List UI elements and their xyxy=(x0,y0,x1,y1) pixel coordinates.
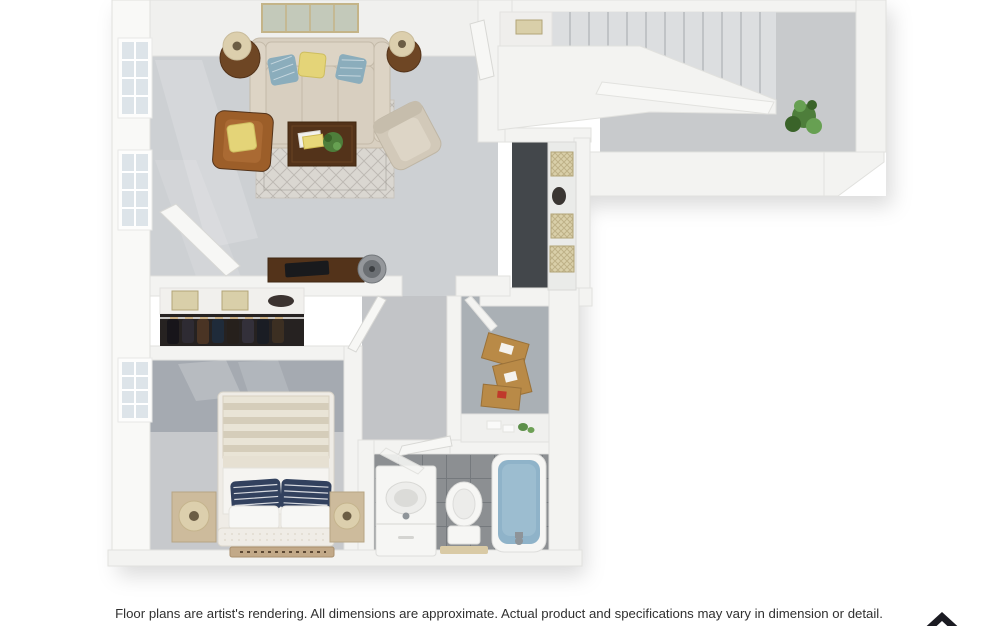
entry-bottom-wall xyxy=(578,152,824,196)
living-window-lower xyxy=(118,150,152,230)
bed xyxy=(218,392,334,546)
staircase xyxy=(498,12,776,130)
bedroom-top-wall xyxy=(150,346,362,360)
living-bottom-wall-right xyxy=(456,276,510,296)
magazines xyxy=(298,130,324,149)
desk xyxy=(268,255,386,283)
bed-footboard xyxy=(218,528,334,546)
drawer-handle xyxy=(398,536,414,539)
outer-wall-lower-right xyxy=(549,288,579,558)
desk-fan xyxy=(358,255,386,283)
floor-plan-image: Floor plans are artist's rendering. All … xyxy=(0,0,998,626)
sink-faucet xyxy=(403,513,410,520)
nightstand-right xyxy=(330,492,364,542)
bedside-runner-rug xyxy=(230,547,334,557)
toilet-tank xyxy=(448,526,480,544)
brand-chevron-logo xyxy=(919,611,965,626)
counter-item xyxy=(552,187,566,205)
kitchen-pantry xyxy=(548,142,576,290)
bedroom-window xyxy=(118,358,152,422)
green-bottle xyxy=(528,427,535,433)
striped-duvet xyxy=(223,396,329,458)
floor-plan-canvas xyxy=(0,0,998,626)
leather-armchair xyxy=(212,110,274,172)
kitchen-pantry-floor xyxy=(512,142,548,290)
green-bottle xyxy=(518,423,528,431)
white-pillow xyxy=(229,506,279,530)
nightstand-left xyxy=(172,492,216,542)
shelf-box xyxy=(172,291,198,310)
coat-closet xyxy=(160,288,304,346)
throw-pillow-blue xyxy=(267,54,299,86)
bathtub xyxy=(492,454,546,552)
bath-mat xyxy=(440,546,488,554)
living-window-upper xyxy=(118,38,152,118)
shelf-shoes xyxy=(268,295,294,307)
outer-wall-top xyxy=(498,0,886,12)
duvet-fold xyxy=(223,456,329,468)
throw-pillow-yellow xyxy=(298,52,326,79)
shelf-box xyxy=(516,20,542,34)
white-pillow xyxy=(281,506,331,530)
disclaimer-text: Floor plans are artist's rendering. All … xyxy=(0,606,998,621)
moving-box xyxy=(481,384,521,410)
table-plant xyxy=(323,132,343,152)
closet-counter xyxy=(461,414,549,442)
chevron-icon xyxy=(919,611,965,626)
shelf-box xyxy=(222,291,248,310)
coffee-table xyxy=(288,122,356,166)
hall-closet-divider-wall xyxy=(447,296,461,442)
vanity-sink xyxy=(376,466,436,556)
outer-wall-right xyxy=(856,0,886,152)
armchair-pillow xyxy=(227,122,257,152)
